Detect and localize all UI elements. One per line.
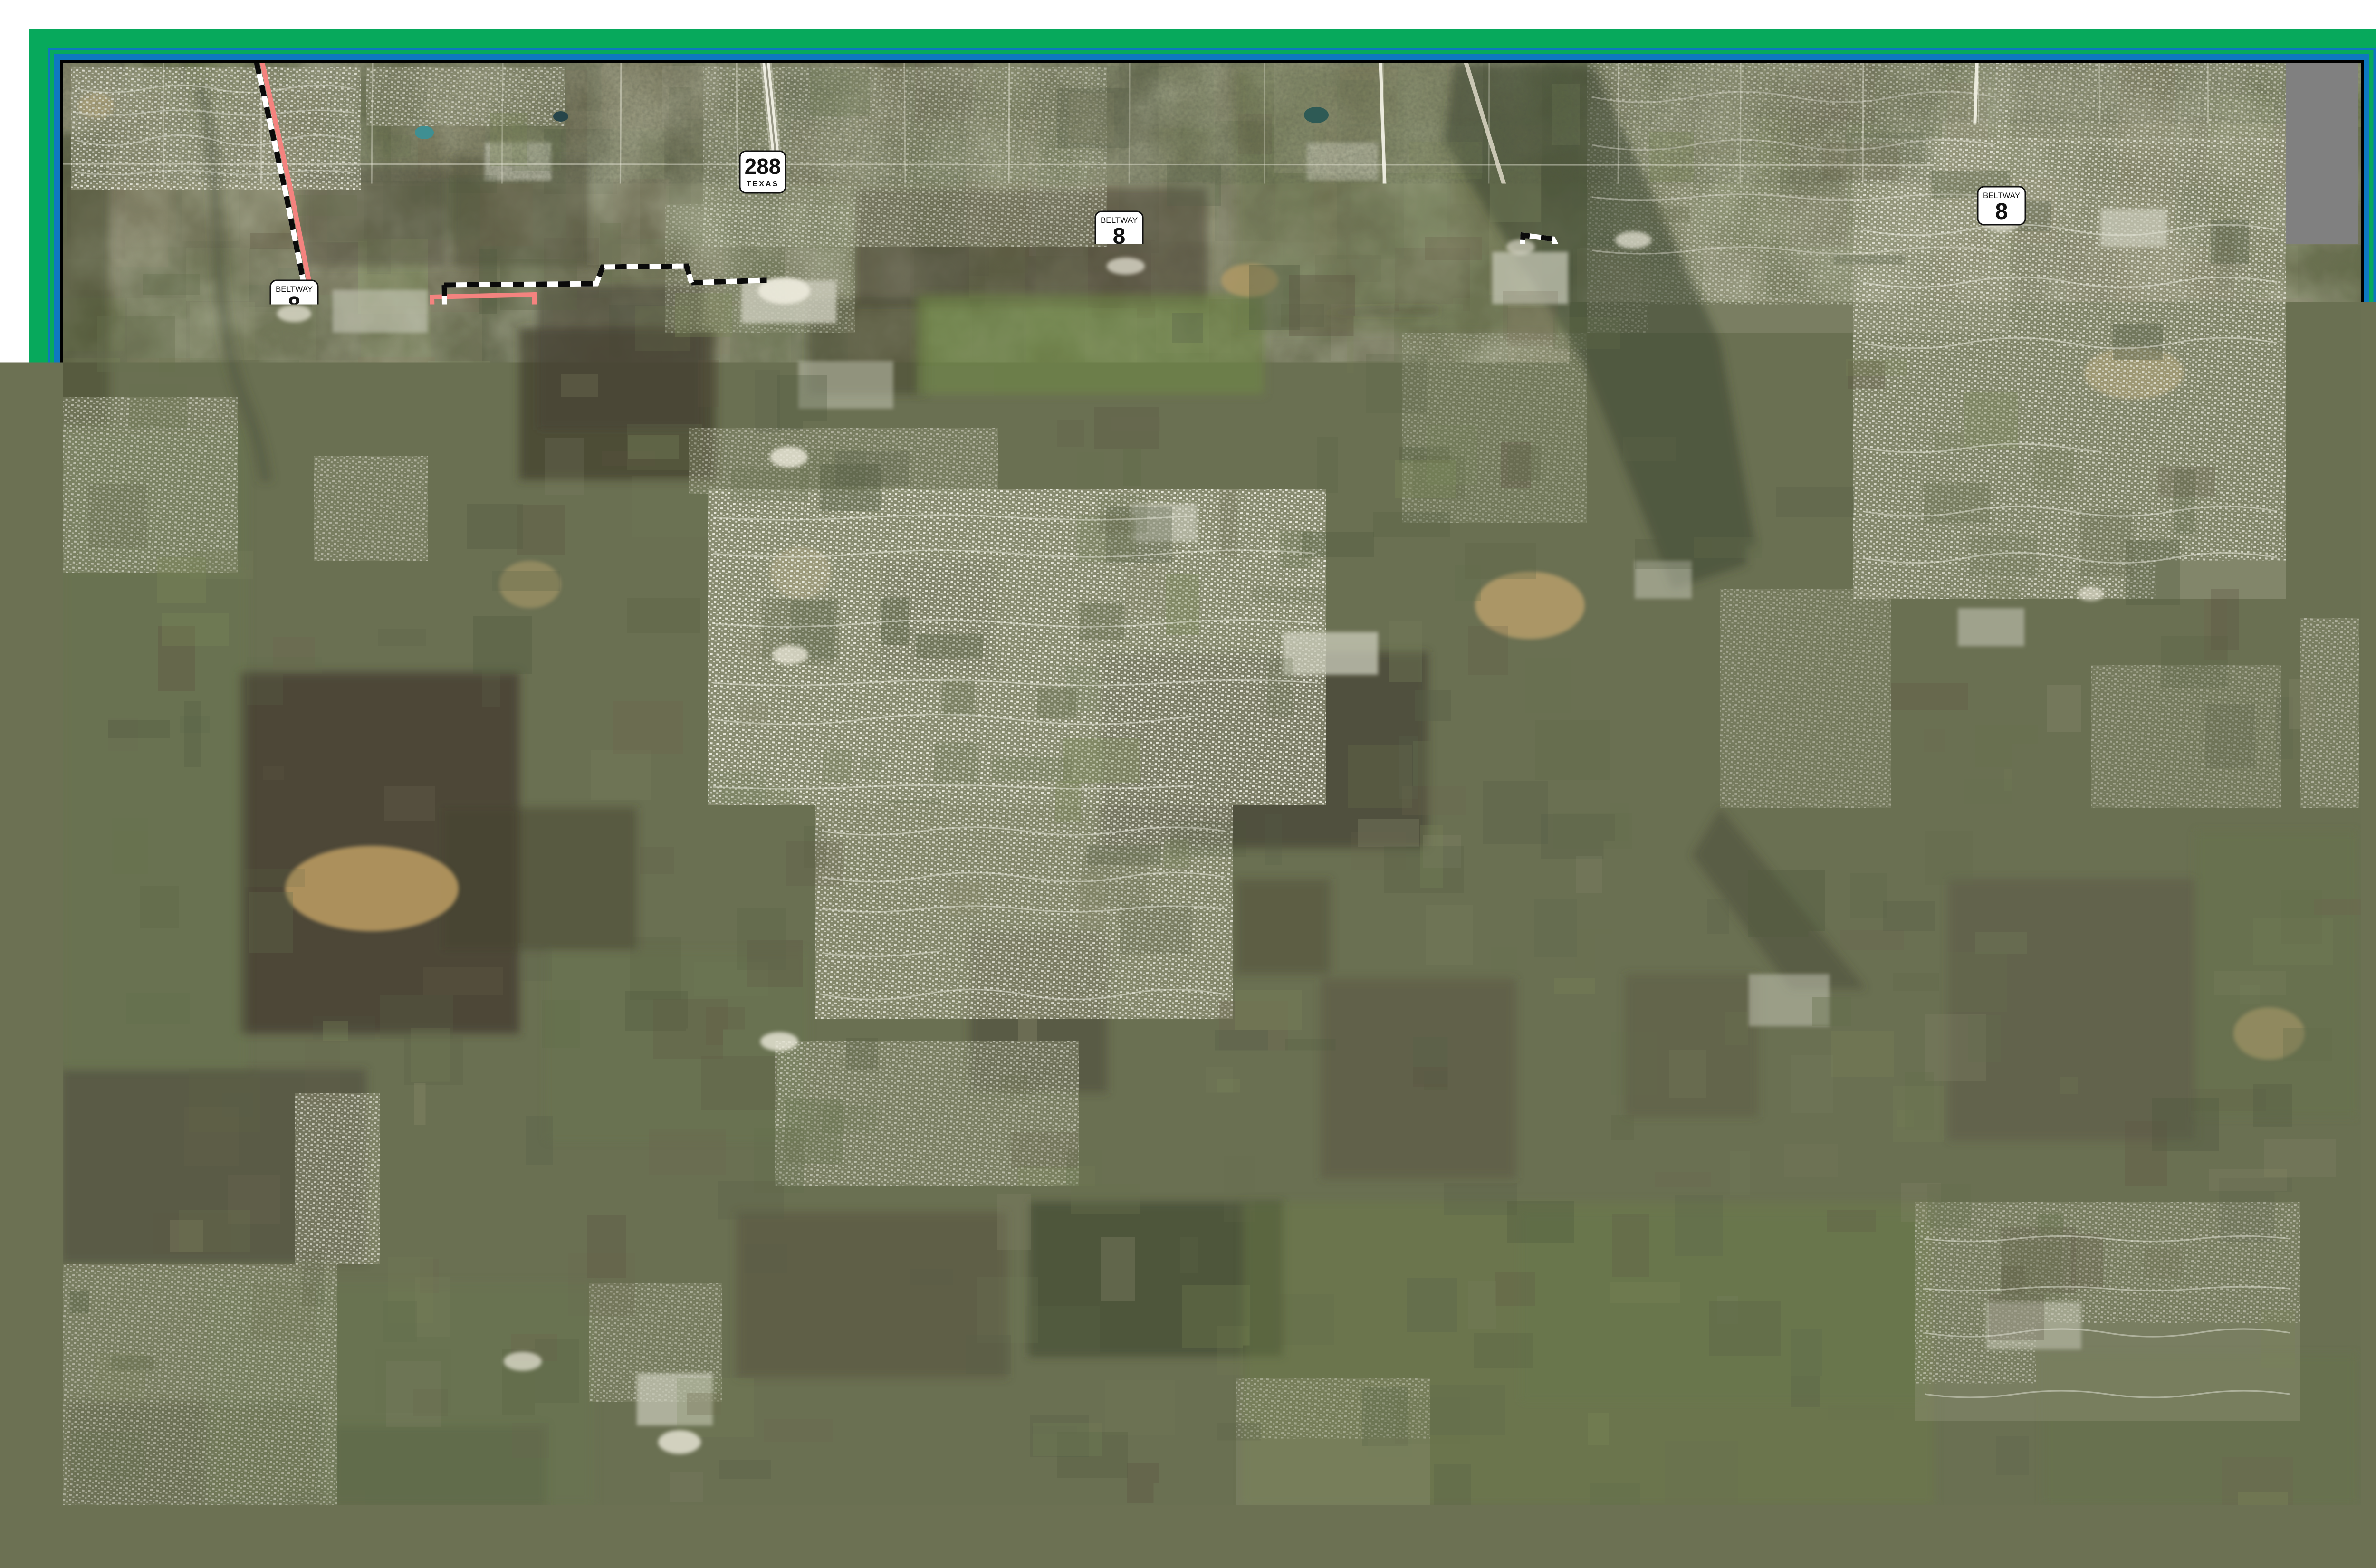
svg-text:FARM: FARM (1103, 435, 1121, 442)
svg-text:1128: 1128 (1262, 952, 1290, 966)
svg-text:TEXAS: TEXAS (773, 476, 805, 484)
svg-text:engineering, or surveying purp: engineering, or surveying purposes. It d… (2117, 1398, 2314, 1410)
svg-text:FARM: FARM (203, 1032, 221, 1039)
svg-text:not have been prepared for or: not have been prepared for or be suitabl… (2110, 1387, 2322, 1399)
svg-text:ROAD: ROAD (1257, 969, 1275, 976)
svg-text:ROAD: ROAD (360, 584, 378, 592)
svg-text:518: 518 (1306, 614, 1333, 632)
svg-text:288: 288 (773, 994, 810, 1019)
svg-text:288: 288 (771, 450, 807, 475)
svg-text:City Limits: City Limits (1535, 1417, 1634, 1441)
svg-text:865: 865 (1088, 444, 1115, 462)
svg-text:FARM: FARM (381, 555, 399, 562)
svg-text:521: 521 (188, 1041, 215, 1059)
svg-text:3 5: 3 5 (1987, 1203, 2018, 1227)
svg-text:518: 518 (1838, 637, 1865, 655)
svg-text:FARM: FARM (1278, 940, 1295, 947)
svg-text:6: 6 (497, 1331, 508, 1354)
svg-text:represent an on-the-ground sur: represent an on-the-ground survey and re… (2113, 1409, 2319, 1421)
svg-text:TEXAS: TEXAS (1983, 1415, 2039, 1423)
svg-text:FARM: FARM (1853, 628, 1870, 635)
svg-text:3 5: 3 5 (1618, 259, 1648, 284)
svg-text:TEXAS: TEXAS (747, 180, 779, 188)
svg-text:ROAD: ROAD (1301, 634, 1319, 641)
svg-text:This product is for informatio: This product is for informational purpos… (2108, 1376, 2324, 1388)
svg-text:ETJ: ETJ (1736, 1417, 1774, 1441)
svg-text:ROAD: ROAD (1832, 657, 1850, 664)
svg-text:0: 0 (2139, 1329, 2147, 1344)
svg-text:288: 288 (745, 154, 781, 179)
svg-text:only the approximate relative: only the approximate relative location o… (2112, 1420, 2320, 1432)
svg-text:FARM: FARM (1322, 605, 1339, 612)
svg-text:1: 1 (2282, 1329, 2290, 1344)
svg-text:TEXAS: TEXAS (1617, 285, 1649, 293)
svg-text:Miles: Miles (2200, 1351, 2229, 1366)
svg-text:TEXAS: TEXAS (775, 1021, 807, 1029)
svg-text:N: N (2076, 1393, 2086, 1409)
svg-text:8: 8 (1995, 199, 2008, 224)
svg-text:0.5: 0.5 (2204, 1329, 2224, 1344)
svg-text:TEXAS: TEXAS (1986, 1229, 2019, 1237)
svg-text:2012 Aerial Imagery: 2012 Aerial Imagery (1460, 1361, 1755, 1397)
svg-text:boundaries.: boundaries. (2192, 1431, 2240, 1443)
svg-text:PEARLAND: PEARLAND (1963, 1388, 2060, 1413)
svg-text:8: 8 (1113, 224, 1126, 249)
svg-text:1 inch = 1 miles: 1 inch = 1 miles (2168, 1309, 2264, 1324)
svg-text:521: 521 (366, 564, 393, 582)
svg-text:ROAD: ROAD (1082, 464, 1100, 471)
svg-text:8: 8 (288, 293, 301, 318)
svg-text:ROAD: ROAD (182, 1061, 201, 1069)
svg-text:CITY OF PEARLAND IT-GIS DEPAR: CITY OF PEARLAND IT-GIS DEPARTMENT (2100, 1463, 2329, 1476)
